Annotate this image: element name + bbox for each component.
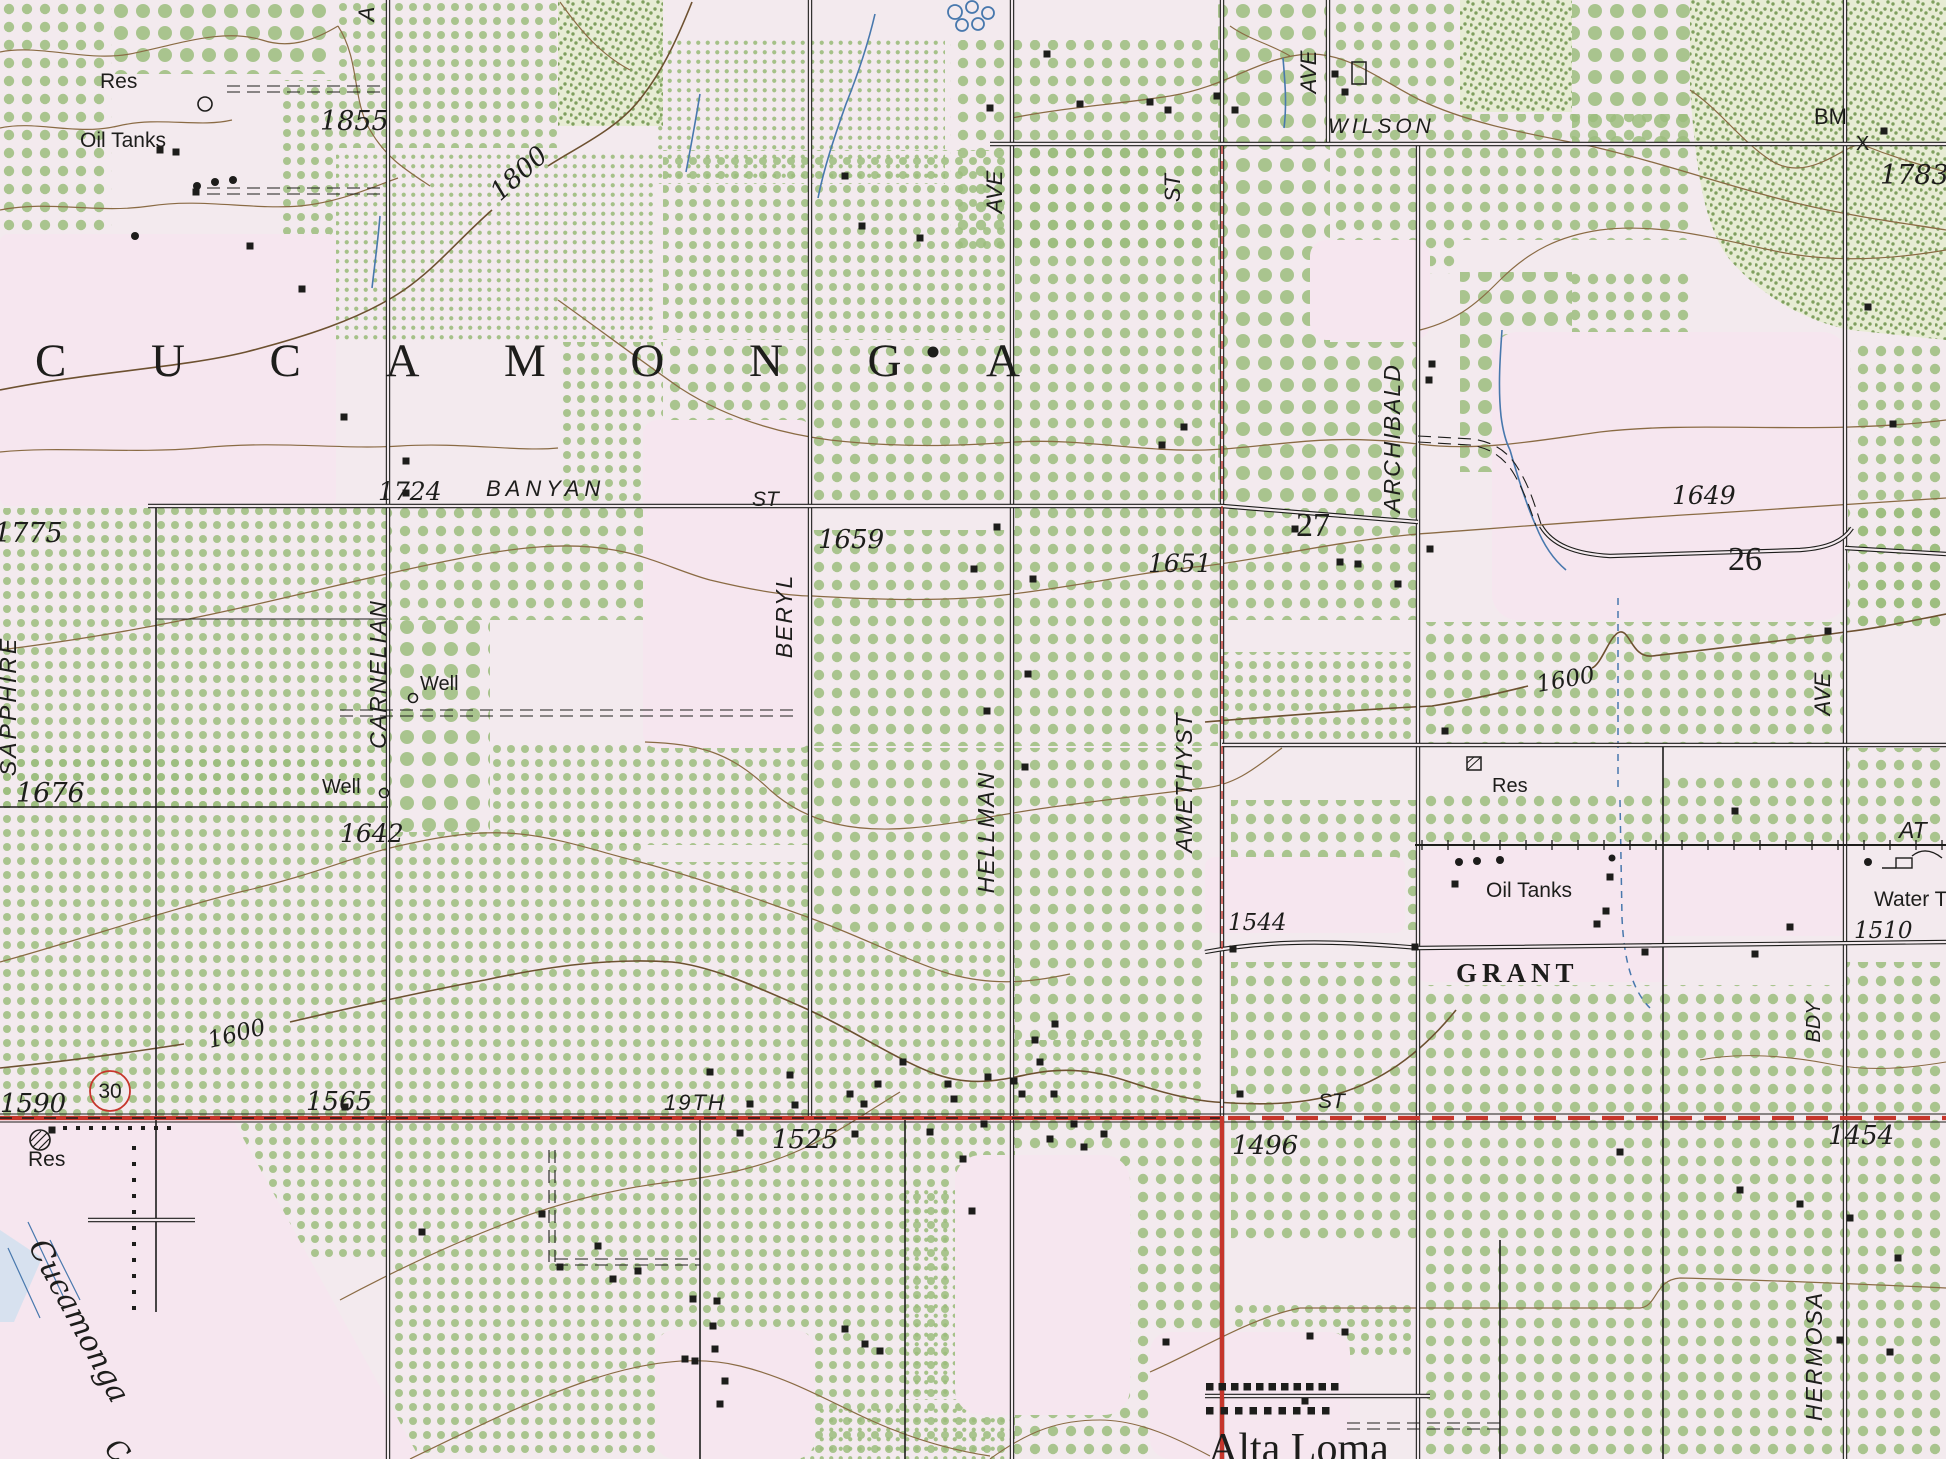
feature-bm: BM [1814, 104, 1847, 129]
oil-tank-dot-icon [1473, 857, 1481, 865]
elev-1525: 1525 [772, 1125, 838, 1155]
town-alta-loma: Alta Loma [1208, 1426, 1389, 1459]
feature-well-2: Well [322, 776, 361, 798]
section-27: 27 [1296, 507, 1330, 544]
elev-1496: 1496 [1232, 1131, 1298, 1161]
elev-1659: 1659 [818, 525, 884, 555]
street-cut-letter: A [354, 7, 379, 24]
street-archibald-ave: AVE [1296, 50, 1321, 95]
railroad-at: AT [1897, 817, 1929, 843]
street-banyan-st: ST [752, 488, 781, 511]
street-sapphire: SAPPHIRE [0, 636, 21, 776]
map-viewport: CUCAMONGAAlta LomaCucamongaCWILSONBANYAN… [0, 0, 1946, 1459]
oil-tank-dot-icon [193, 182, 201, 190]
elev-1783: 1783 [1880, 160, 1946, 191]
street-hellman-ave: AVE [982, 170, 1007, 215]
elev-1724: 1724 [378, 477, 442, 506]
street-19th: 19TH [664, 1090, 726, 1115]
oil-tank-dot-icon [1864, 858, 1872, 866]
elev-1651: 1651 [1148, 549, 1212, 578]
feature-well-1: Well [420, 673, 459, 695]
feature-water-tank: Water T [1874, 888, 1946, 911]
feature-oil-tanks-nw: Oil Tanks [80, 129, 166, 152]
route-30: 30 [98, 1080, 121, 1103]
elev-1642: 1642 [340, 819, 404, 848]
street-hermosa-ave: AVE [1810, 672, 1835, 717]
street-grant: GRANT [1456, 958, 1579, 988]
street-banyan: BANYAN [486, 476, 605, 501]
elev-1775: 1775 [0, 518, 63, 549]
street-beryl: BERYL [771, 574, 797, 659]
street-19th-st: ST [1318, 1090, 1347, 1113]
elev-1676: 1676 [16, 778, 85, 809]
oil-tank-dot-icon [229, 176, 237, 184]
elev-1855: 1855 [320, 106, 389, 137]
elev-1590: 1590 [0, 1089, 66, 1119]
street-hellman: HELLMAN [973, 771, 999, 894]
section-26: 26 [1728, 541, 1762, 578]
street-carnelian: CARNELIAN [365, 599, 391, 749]
region-name: CUCAMONGA [35, 335, 1020, 387]
oil-tank-dot-icon [1455, 858, 1463, 866]
elev-1649: 1649 [1672, 481, 1736, 510]
oil-tank-dot-icon [211, 178, 219, 186]
elev-1565: 1565 [306, 1087, 372, 1117]
feature-oil-tanks-e: Oil Tanks [1486, 879, 1572, 902]
feature-res-nw: Res [100, 70, 137, 93]
oil-tank-dot-icon [1496, 856, 1504, 864]
feature-res-sw: Res [28, 1148, 65, 1171]
topo-map-scan: CUCAMONGAAlta LomaCucamongaCWILSONBANYAN… [0, 0, 1946, 1459]
elev-1454: 1454 [1828, 1121, 1894, 1151]
street-amethyst: AMETHYST [1171, 711, 1197, 854]
street-amethyst-st: ST [1160, 172, 1185, 202]
street-hermosa: HERMOSA [1801, 1291, 1827, 1421]
street-bdy: BDY [1803, 1000, 1825, 1043]
elev-1544: 1544 [1228, 910, 1287, 936]
feature-res-e: Res [1492, 775, 1528, 797]
street-archibald: ARCHIBALD [1379, 363, 1405, 515]
street-wilson: WILSON [1328, 115, 1435, 138]
elev-1510: 1510 [1854, 918, 1913, 944]
feature-bm-x: X [1856, 133, 1869, 155]
